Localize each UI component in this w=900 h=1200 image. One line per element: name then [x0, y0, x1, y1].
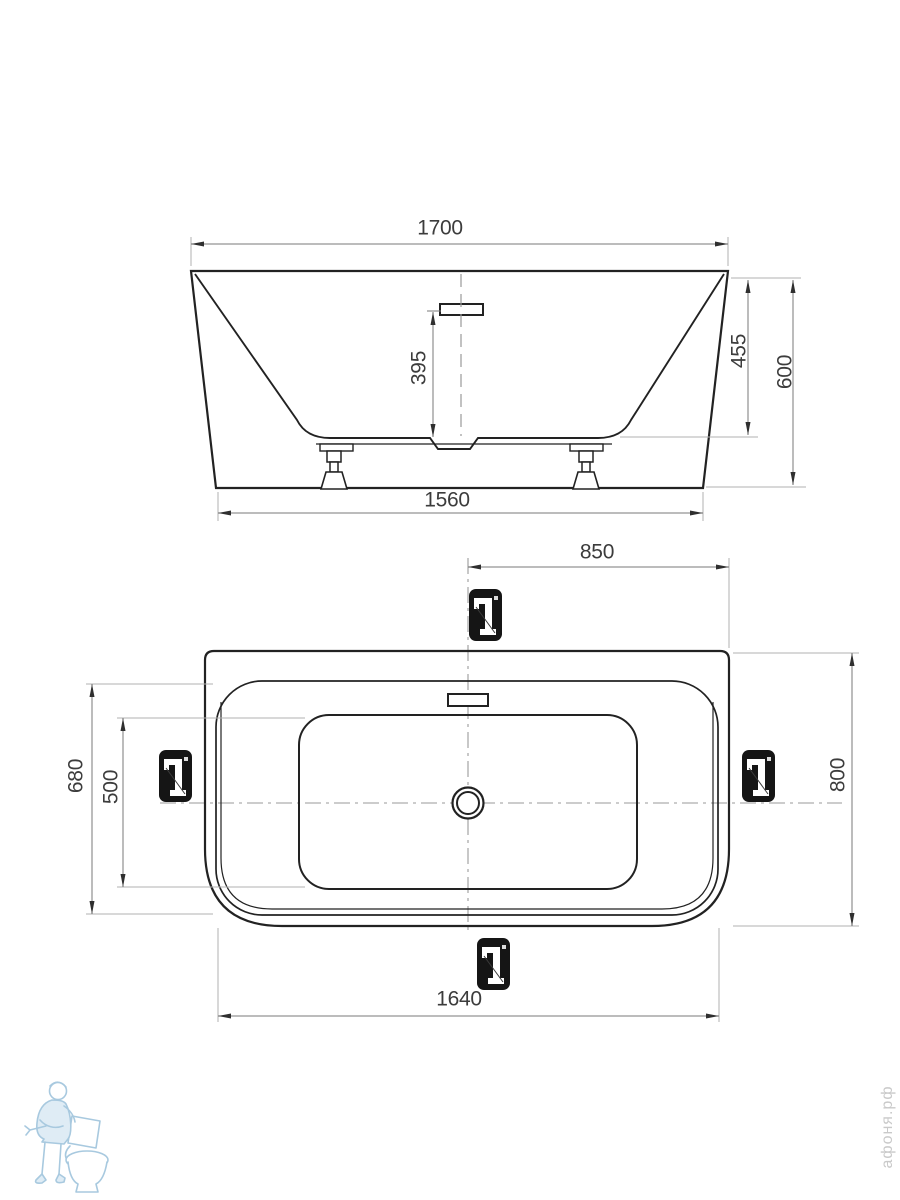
dim-label-overflow-height: 395: [409, 351, 430, 385]
foot-mounting-plate-left: [320, 444, 353, 451]
site-watermark-text: афоня.рф: [878, 1072, 898, 1182]
drawing-linework: [0, 0, 900, 1200]
dim-label-overall-depth: 800: [828, 758, 849, 792]
dim-label-overall-width: 1700: [417, 218, 463, 239]
dim-label-plan-inner-depth: 500: [101, 770, 122, 804]
dim-label-base-width: 1560: [424, 490, 470, 511]
faucet-icon-bottom: [477, 938, 510, 990]
dim-label-center-to-edge: 850: [580, 542, 614, 563]
faucet-icon-left: [159, 750, 192, 802]
faucet-icon-right: [742, 750, 775, 802]
technical-drawing-page: 1700 395 455 600 1560 850 680 500 800 16…: [0, 0, 900, 1200]
foot-mounting-plate-right: [570, 444, 603, 451]
front-inner-basin: [195, 274, 724, 449]
faucet-icon-top: [469, 589, 502, 641]
dim-label-overall-height: 600: [775, 355, 796, 389]
adjustable-foot-right: [573, 451, 599, 489]
front-view: [191, 237, 806, 521]
adjustable-foot-left: [321, 451, 347, 489]
dim-label-rim-length: 1640: [436, 989, 482, 1010]
plumber-logo-watermark: [25, 1082, 108, 1192]
overflow-plan: [448, 694, 488, 706]
top-view: [86, 558, 859, 1022]
dim-label-inner-depth: 455: [729, 334, 750, 368]
dim-label-rim-depth: 680: [66, 759, 87, 793]
